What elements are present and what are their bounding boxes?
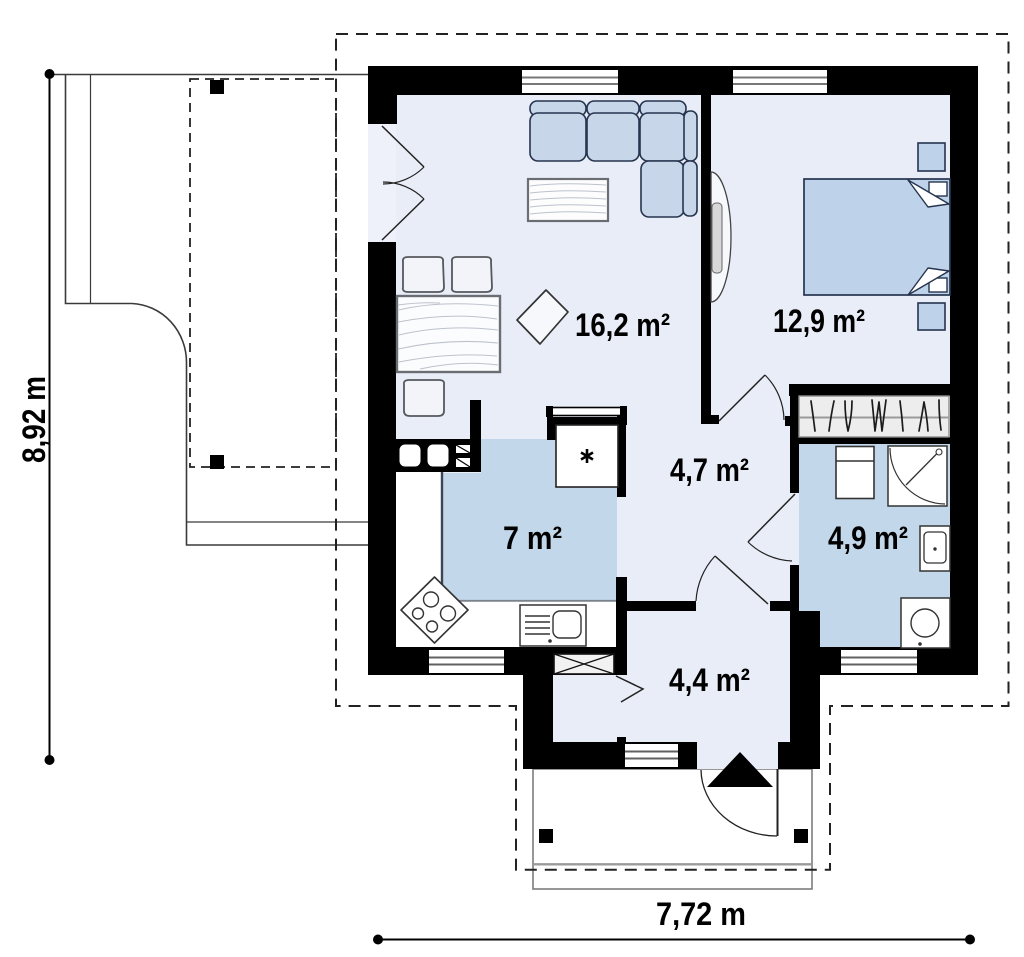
svg-text:7 m²: 7 m² [503, 520, 562, 556]
svg-text:12,9 m²: 12,9 m² [773, 303, 865, 339]
svg-text:16,2 m²: 16,2 m² [575, 307, 670, 343]
svg-text:7,72 m: 7,72 m [656, 896, 746, 932]
svg-text:8,92 m: 8,92 m [16, 376, 52, 463]
svg-text:4,9 m²: 4,9 m² [828, 520, 908, 556]
svg-text:4,4 m²: 4,4 m² [669, 662, 750, 698]
svg-text:4,7 m²: 4,7 m² [670, 452, 749, 488]
